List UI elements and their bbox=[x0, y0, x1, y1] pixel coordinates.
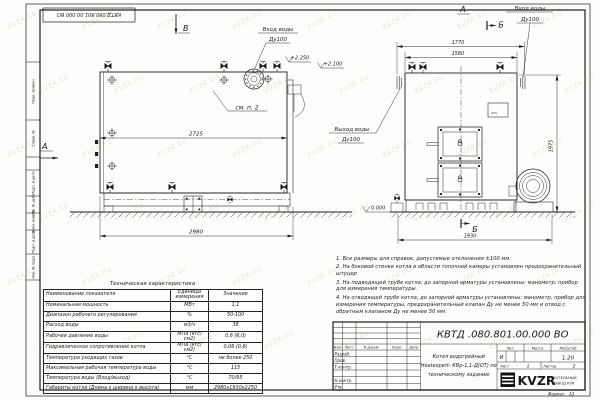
spec-table-row: Габариты котла (Длина х ширина х высота)… bbox=[44, 384, 263, 394]
spec-table-cell: °С bbox=[171, 374, 209, 384]
spec-table-row: Расход водым3/ч38 bbox=[44, 321, 263, 331]
lit-value: И bbox=[500, 355, 504, 361]
valve-icon bbox=[497, 63, 503, 74]
lit-label: Лит. bbox=[505, 346, 514, 350]
drawing-sheet: Перв. примен. Справ. № Подп. и дата Инв.… bbox=[0, 0, 600, 400]
door-handle bbox=[427, 143, 438, 146]
valve-icon bbox=[221, 62, 227, 73]
tb-header: Подп. bbox=[392, 345, 402, 349]
spec-table-cell: °С bbox=[171, 364, 209, 374]
dim-2725-label: 2725 bbox=[189, 132, 203, 138]
spec-table-cell: МВт bbox=[171, 301, 209, 311]
svg-text:Вход воды: Вход воды bbox=[263, 27, 294, 33]
notes-block: 1. Все размеры для справок, допустимые о… bbox=[336, 256, 588, 317]
support-bracket bbox=[391, 203, 403, 212]
valve-icon bbox=[228, 196, 233, 204]
lower-door bbox=[427, 163, 482, 197]
spec-table-row: Диапазон рабочего регулирования%50-100 bbox=[44, 311, 263, 321]
blower-fan bbox=[509, 169, 553, 212]
tb-header: Дата bbox=[408, 345, 418, 349]
kvzr-logo: KVZR КОТЕЛЬНЫЙ ЗАВОД РЭП bbox=[501, 373, 577, 389]
inlet-label-front: Вход воды Ду100 bbox=[506, 6, 553, 77]
svg-text:Вход воды: Вход воды bbox=[515, 6, 546, 12]
lifting-lug-icon bbox=[107, 75, 117, 85]
lifting-lug-icon bbox=[107, 128, 117, 138]
tb-row-label: Н.контр. bbox=[335, 378, 353, 383]
spec-table-cell: 115 bbox=[209, 364, 263, 374]
sheet-value: 1 bbox=[527, 363, 530, 369]
sheets-label: Листов bbox=[542, 364, 556, 368]
valve-icon bbox=[409, 63, 415, 74]
svg-text:1975: 1975 bbox=[549, 140, 555, 153]
margin-label: Перв. примен. bbox=[31, 78, 35, 103]
spec-table-cell: не более 250 bbox=[209, 354, 263, 364]
spec-table-cell: Габариты котла (Длина х ширина х высота) bbox=[44, 384, 171, 394]
svg-text:1560: 1560 bbox=[452, 51, 465, 57]
spec-table-cell: Гидравлическое сопротивление котла bbox=[44, 342, 171, 353]
drain-box bbox=[184, 196, 202, 212]
sheets-value: 2 bbox=[573, 363, 576, 369]
door-latch-icon bbox=[458, 176, 462, 181]
svg-text:Б: Б bbox=[472, 225, 478, 234]
spec-table-title: Техническая характеристика bbox=[43, 281, 262, 287]
spec-table-row: Гидравлическое сопротивление котлаМПа (к… bbox=[44, 342, 263, 353]
spec-table-cell: 50-100 bbox=[209, 311, 263, 321]
svg-text:Ду100: Ду100 bbox=[268, 37, 288, 43]
margin-label: Подп. и дата bbox=[31, 171, 35, 194]
logo-text: KVZR bbox=[518, 373, 556, 388]
valve-icon bbox=[394, 195, 399, 203]
product-name: Котел водогрейный bbox=[432, 354, 485, 360]
valve-icon bbox=[105, 62, 111, 73]
product-name: техническому заданию bbox=[428, 372, 490, 378]
section-mark-b-bottom: Б bbox=[461, 219, 478, 234]
margin-label: Инв. № подл. bbox=[31, 255, 35, 278]
spec-table-cell: 70/95 bbox=[209, 374, 263, 384]
valve-icon bbox=[420, 63, 426, 74]
spec-table-cell: Температура уходящих газов bbox=[44, 354, 171, 364]
spec-table-cell: Максимальная рабочая температура воды bbox=[44, 364, 171, 374]
spec-table-cell: 0,06 (0,6) bbox=[209, 342, 263, 353]
elevation-marks bbox=[286, 57, 391, 213]
margin-label: Взам. инв. № bbox=[31, 210, 35, 233]
valve-icon bbox=[281, 183, 287, 194]
svg-text:Ду100: Ду100 bbox=[520, 17, 540, 23]
format-value: А3 bbox=[568, 391, 575, 396]
spec-table-cell: Расход воды bbox=[44, 321, 171, 331]
ground-hatch bbox=[390, 212, 575, 218]
spec-table-row: Температура воды (Вход/выход)°С70/95 bbox=[44, 374, 263, 384]
spec-table-cell: м3/ч bbox=[171, 321, 209, 331]
see-note-callout: см. п. 2 bbox=[213, 91, 267, 112]
spec-col-header: Наименование показателя bbox=[44, 289, 171, 301]
format-label: Формат bbox=[548, 391, 565, 396]
spec-table-cell: °С bbox=[171, 354, 209, 364]
spec-table-row: Температура уходящих газов°Сне более 250 bbox=[44, 354, 263, 364]
door-latch-icon bbox=[458, 140, 462, 145]
spec-col-header: Единицы измерения bbox=[171, 289, 209, 301]
spec-table-body: Номинальная мощностьМВт1,1Диапазон рабоч… bbox=[44, 301, 263, 394]
spec-table-cell: 1,1 bbox=[209, 301, 263, 311]
elevation-label: 0.000 bbox=[371, 206, 385, 212]
view-letter-a: А bbox=[41, 142, 47, 151]
spec-table-row: Максимальная рабочая температура воды°С1… bbox=[44, 364, 263, 374]
lifting-lug-icon bbox=[107, 161, 117, 171]
lifting-lug-icon bbox=[219, 75, 229, 85]
spec-table-row: Номинальная мощностьМВт1,1 bbox=[44, 301, 263, 311]
svg-text:см. п. 2: см. п. 2 bbox=[235, 105, 258, 112]
spec-table-cell: Рабочее давление воды bbox=[44, 331, 171, 342]
side-view: 2725 bbox=[40, 14, 401, 240]
lifting-lug-icon bbox=[263, 74, 273, 84]
spec-col-header: Значение bbox=[209, 289, 263, 301]
product-name: Heatexpert- КВр-1,1-Д(ОТ) по bbox=[421, 363, 497, 369]
corner-stamp-number: КВТД.080.801.00.000 ВО bbox=[57, 11, 121, 17]
scale-value: 1:20 bbox=[562, 356, 575, 362]
tb-row-label: Пров. bbox=[335, 358, 347, 363]
explosion-door bbox=[288, 85, 304, 117]
valve-icon bbox=[274, 62, 280, 73]
svg-text:Выход воды: Выход воды bbox=[334, 127, 370, 133]
dim-2980-label: 2980 bbox=[189, 230, 203, 236]
dim-1770: 1770 bbox=[397, 40, 525, 74]
tb-header: Лист bbox=[344, 345, 355, 349]
ladder-brackets bbox=[95, 140, 98, 168]
tb-header: N докум. bbox=[364, 345, 380, 349]
spec-table-cell: 2980х1930х2250 bbox=[209, 384, 263, 394]
view-letter-a-front: А bbox=[459, 5, 465, 14]
spec-table-cell: 38 bbox=[209, 321, 263, 331]
valve-icon bbox=[169, 183, 175, 194]
spec-table-cell: Температура воды (Вход/выход) bbox=[44, 374, 171, 384]
scale-label: Масштаб bbox=[559, 346, 577, 350]
spec-table-cell: МПа (кгс/см2) bbox=[171, 342, 209, 353]
margin-label: Справ. № bbox=[31, 130, 35, 147]
svg-text:1770: 1770 bbox=[452, 40, 465, 46]
mass-label: Масса bbox=[532, 346, 543, 350]
spec-table-cell: мм bbox=[171, 384, 209, 394]
pipe-flange-icon bbox=[521, 76, 525, 89]
valve-icon bbox=[260, 62, 266, 73]
spec-table: Техническая характеристика Наименование … bbox=[43, 281, 262, 394]
tb-header: Изм. bbox=[334, 345, 342, 349]
spec-table-row: Рабочее давление водыМПа (кгс/см2)0,6 (6… bbox=[44, 331, 263, 342]
upper-door bbox=[427, 127, 482, 161]
spec-table-cell: Номинальная мощность bbox=[44, 301, 171, 311]
elevation-label: +2.250 bbox=[291, 56, 310, 62]
spec-table-cell: МПа (кгс/см2) bbox=[171, 331, 209, 342]
logo-subtext: КОТЕЛЬНЫЙ bbox=[553, 375, 577, 380]
note-line: 1. Все размеры для справок, допустимые о… bbox=[336, 256, 588, 263]
spec-table-cell: 0,6 (6,0) bbox=[209, 331, 263, 342]
section-mark-b-top: Б bbox=[487, 21, 504, 31]
outlet-label: Выход воды Ду100 bbox=[329, 87, 401, 143]
door-handle bbox=[427, 179, 438, 182]
logo-subtext: ЗАВОД РЭП bbox=[553, 381, 575, 385]
valve-icon bbox=[107, 183, 113, 194]
svg-text:1930: 1930 bbox=[464, 234, 477, 240]
note-line: 3. На подводящей трубе котла, до запорно… bbox=[336, 280, 588, 294]
svg-text:Ду100: Ду100 bbox=[341, 137, 361, 143]
spec-table-cell: Диапазон рабочего регулирования bbox=[44, 311, 171, 321]
doc-number: КВТД .080.801.00.000 ВО bbox=[437, 330, 569, 341]
svg-text:Б: Б bbox=[498, 21, 504, 30]
front-view: 1770 1560 1975 1930 Б Б bbox=[390, 5, 575, 244]
note-line: 2. На боковой стенке котла в области топ… bbox=[336, 264, 588, 278]
note-line: 4. На отводящей трубе котла, до запорной… bbox=[336, 295, 588, 316]
title-block: КВТД .080.801.00.000 ВО Изм. Лист N доку… bbox=[333, 322, 585, 390]
spec-table-cell: % bbox=[171, 311, 209, 321]
elevation-label: +2.100 bbox=[324, 62, 343, 68]
dim-2980: 2980 bbox=[100, 196, 293, 240]
inlet-label-side: Вход воды Ду100 bbox=[255, 27, 299, 69]
tb-row-label: Утв. bbox=[335, 385, 343, 390]
tb-row-label: Т.контр. bbox=[335, 365, 352, 370]
tb-row-label: Разраб. bbox=[335, 351, 351, 356]
margin-label: Подп. и дата bbox=[31, 230, 35, 253]
sheet-label: Лист bbox=[499, 364, 510, 368]
view-letter-v: В bbox=[183, 24, 189, 33]
dim-1975: 1975 bbox=[519, 75, 561, 212]
sight-glass bbox=[488, 103, 508, 117]
ground-hatch bbox=[70, 212, 352, 218]
